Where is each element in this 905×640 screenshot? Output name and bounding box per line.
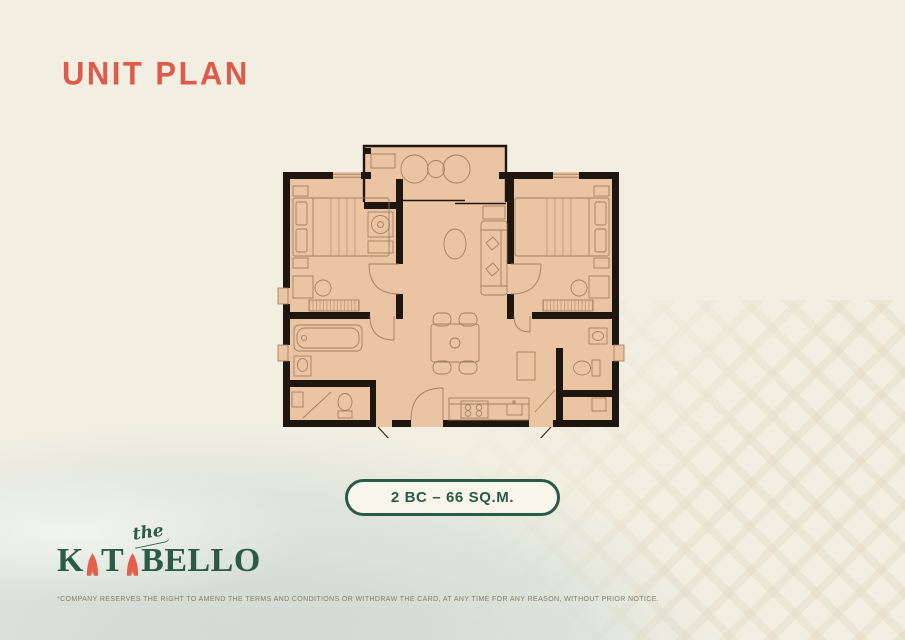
disclaimer-text: *COMPANY RESERVES THE RIGHT TO AMEND THE… [57, 596, 659, 603]
logo-letter-k: K [57, 544, 84, 578]
logo-wordmark: K T BELLO [57, 544, 261, 578]
logo-letter-t: T [101, 544, 124, 578]
katabello-logo: the K T BELLO [57, 522, 261, 578]
sail-icon [125, 552, 140, 577]
floor-plan [277, 140, 625, 438]
unit-size-label: 2 BC – 66 SQ.M. [391, 489, 514, 506]
sail-icon [85, 552, 100, 577]
logo-letters-bello: BELLO [141, 544, 261, 578]
unit-size-badge: 2 BC – 66 SQ.M. [345, 479, 560, 516]
floor-plan-drawing [277, 140, 625, 438]
page-title: UNIT PLAN [62, 55, 250, 93]
unit-plan-page: UNIT PLAN [0, 0, 905, 640]
